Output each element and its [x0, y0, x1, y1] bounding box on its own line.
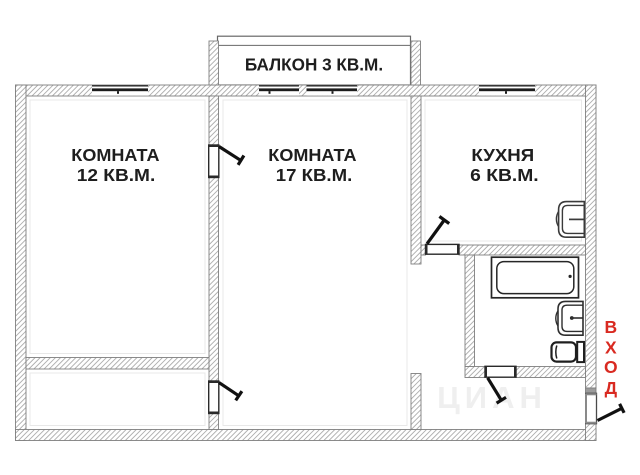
- svg-text:12 КВ.М.: 12 КВ.М.: [77, 165, 156, 185]
- svg-text:О: О: [604, 357, 618, 377]
- svg-text:КОМНАТА: КОМНАТА: [71, 145, 160, 165]
- svg-text:Х: Х: [605, 338, 617, 358]
- svg-text:6 КВ.М.: 6 КВ.М.: [470, 165, 539, 185]
- svg-text:В: В: [604, 317, 617, 337]
- svg-text:БАЛКОН 3 КВ.М.: БАЛКОН 3 КВ.М.: [245, 54, 383, 74]
- svg-text:КОМНАТА: КОМНАТА: [268, 145, 357, 165]
- svg-text:Д: Д: [605, 378, 618, 398]
- svg-text:17 КВ.М.: 17 КВ.М.: [276, 165, 353, 185]
- svg-text:КУХНЯ: КУХНЯ: [471, 145, 534, 165]
